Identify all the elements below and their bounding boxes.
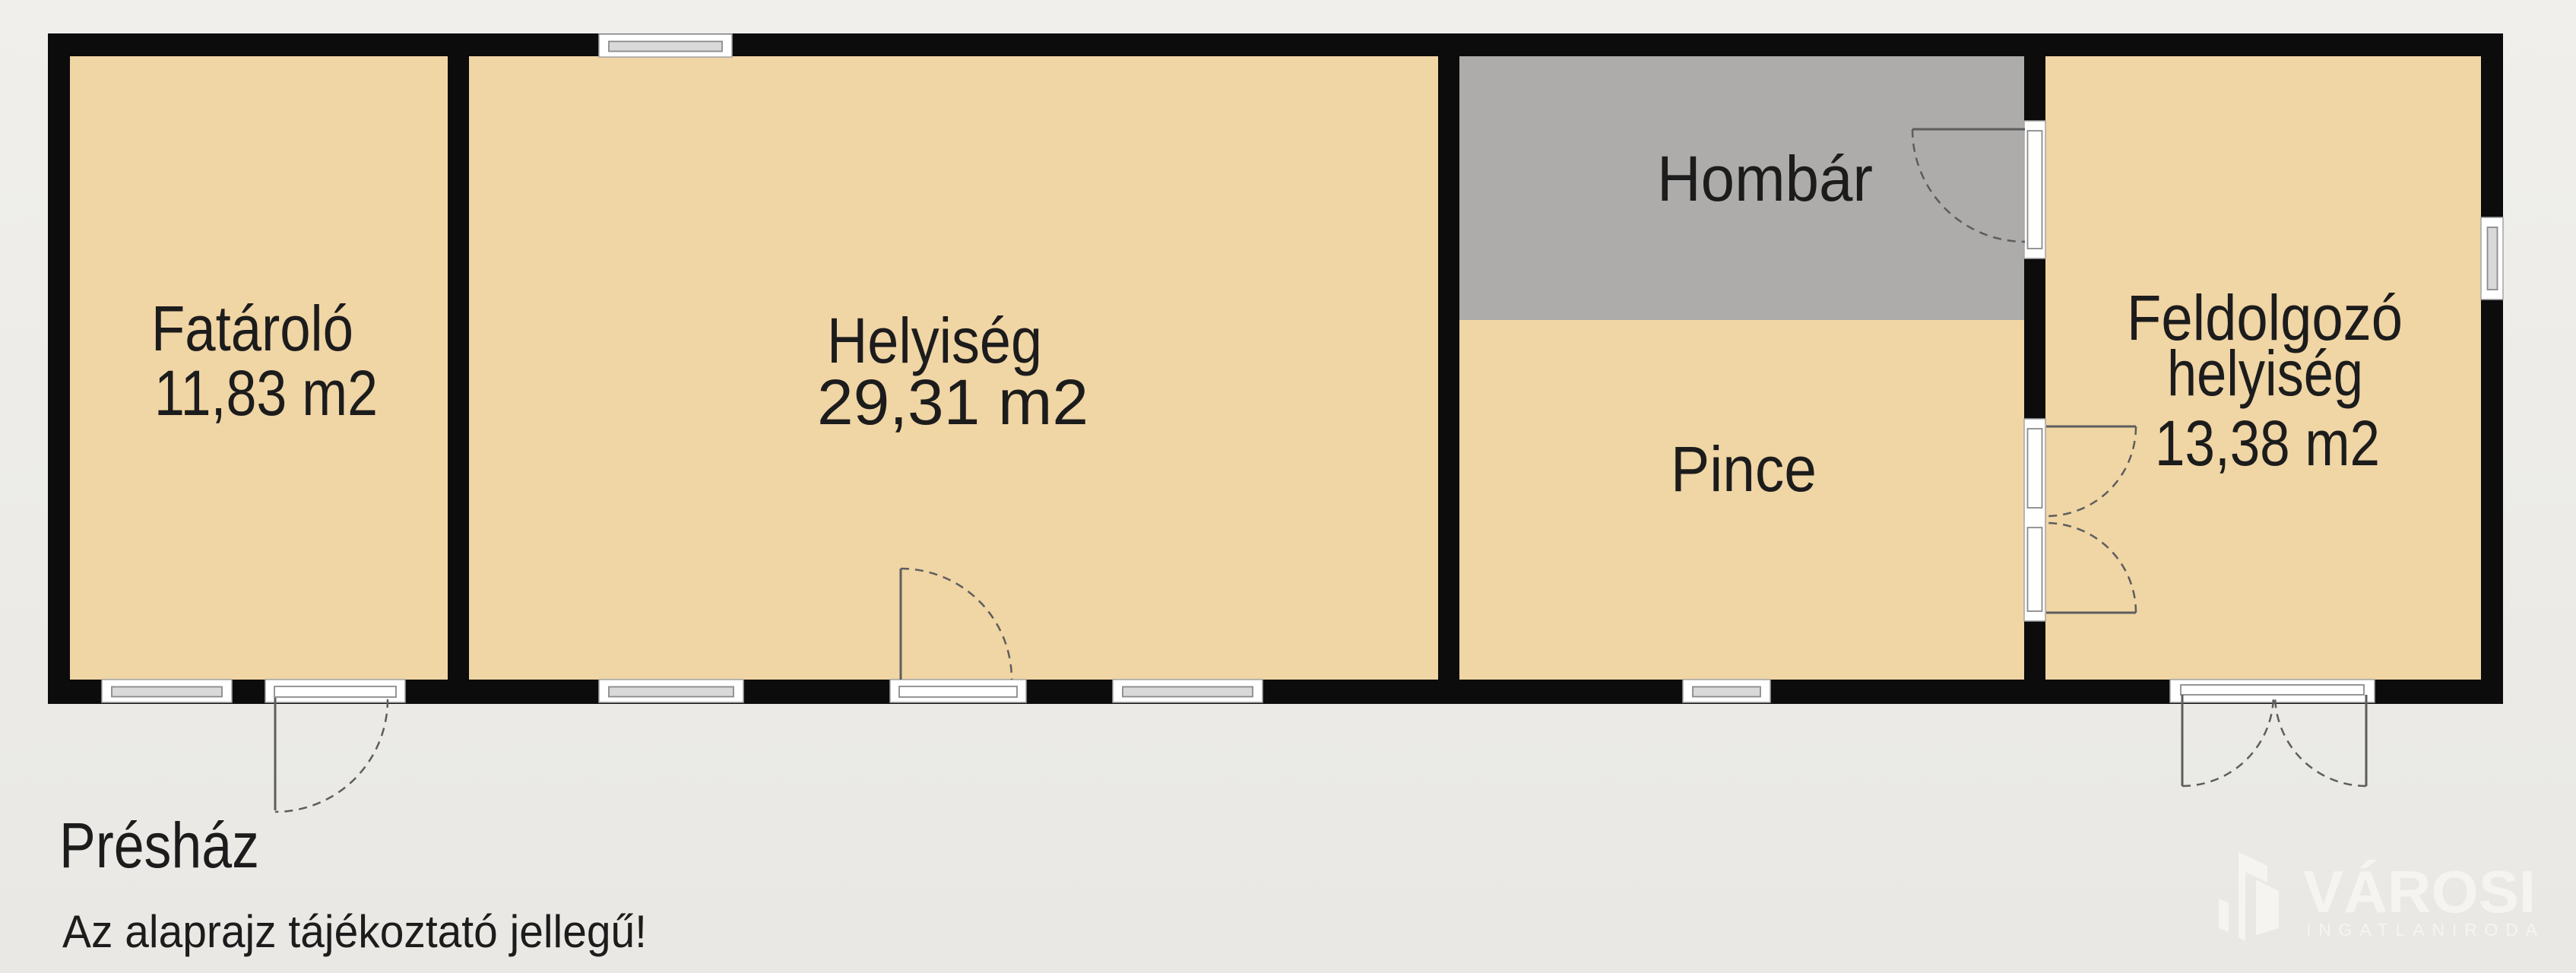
- svg-text:VÁROSI: VÁROSI: [2303, 858, 2536, 925]
- svg-text:29,31 m2: 29,31 m2: [817, 366, 1088, 438]
- svg-text:helyiség: helyiség: [2167, 338, 2363, 409]
- svg-text:13,38 m2: 13,38 m2: [2155, 407, 2380, 479]
- svg-text:Helyiség: Helyiség: [827, 305, 1042, 376]
- svg-text:11,83 m2: 11,83 m2: [154, 357, 378, 429]
- svg-text:Hombár: Hombár: [1657, 143, 1873, 214]
- svg-text:Pince: Pince: [1671, 433, 1817, 505]
- svg-text:Az alaprajz tájékoztató jelleg: Az alaprajz tájékoztató jellegű!: [62, 906, 647, 957]
- svg-text:Fatároló: Fatároló: [151, 293, 353, 364]
- svg-text:Présház: Présház: [59, 810, 259, 881]
